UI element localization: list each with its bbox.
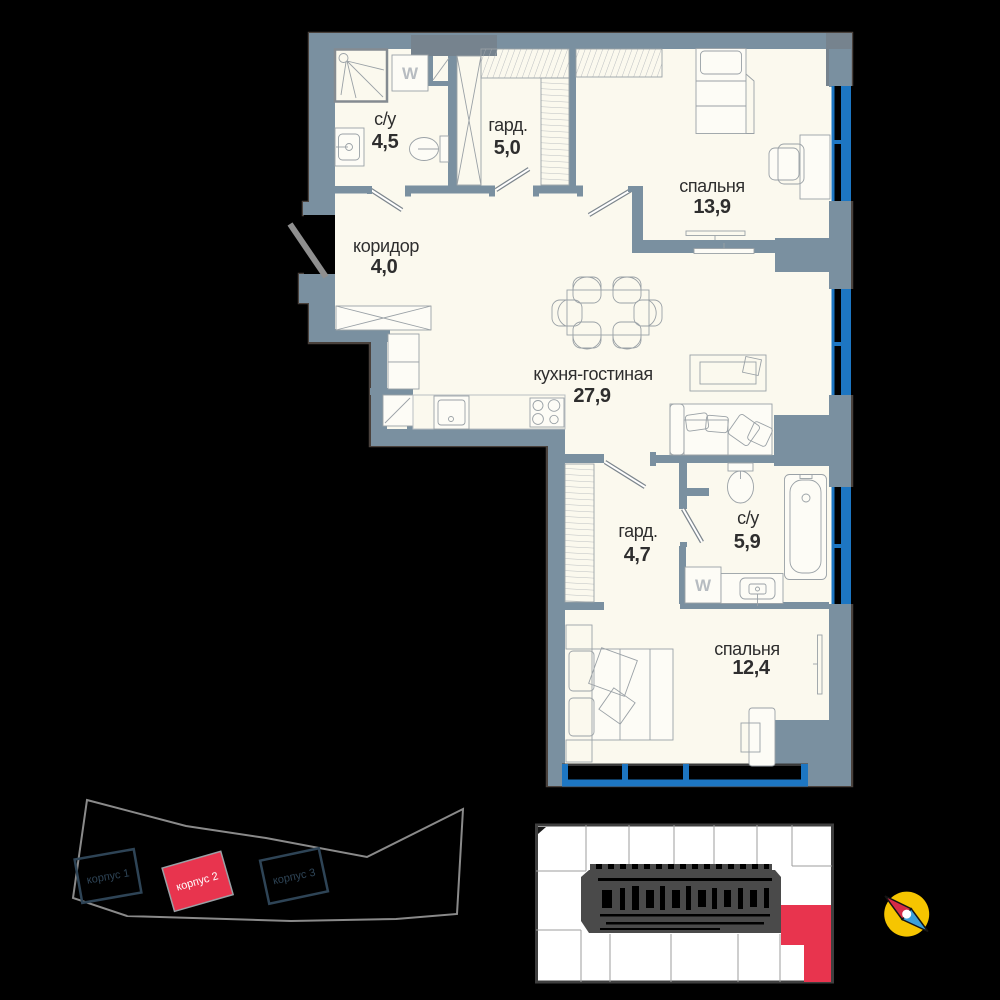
svg-text:спальня: спальня (679, 176, 745, 196)
svg-text:W: W (402, 64, 419, 83)
svg-text:коридор: коридор (353, 236, 419, 256)
svg-text:12,4: 12,4 (732, 657, 771, 679)
svg-text:гард.: гард. (618, 521, 657, 541)
svg-text:4,0: 4,0 (371, 256, 398, 278)
svg-text:4,7: 4,7 (624, 544, 651, 566)
svg-text:27,9: 27,9 (573, 385, 611, 407)
svg-text:с/у: с/у (374, 109, 396, 129)
svg-text:с/у: с/у (737, 508, 759, 528)
svg-text:кухня-гостиная: кухня-гостиная (533, 364, 652, 384)
svg-text:5,0: 5,0 (494, 137, 521, 159)
svg-text:4,5: 4,5 (372, 131, 399, 153)
svg-text:W: W (695, 576, 712, 595)
svg-text:спальня: спальня (714, 639, 780, 659)
svg-text:гард.: гард. (488, 115, 527, 135)
svg-text:13,9: 13,9 (693, 196, 731, 218)
svg-text:5,9: 5,9 (734, 531, 761, 553)
